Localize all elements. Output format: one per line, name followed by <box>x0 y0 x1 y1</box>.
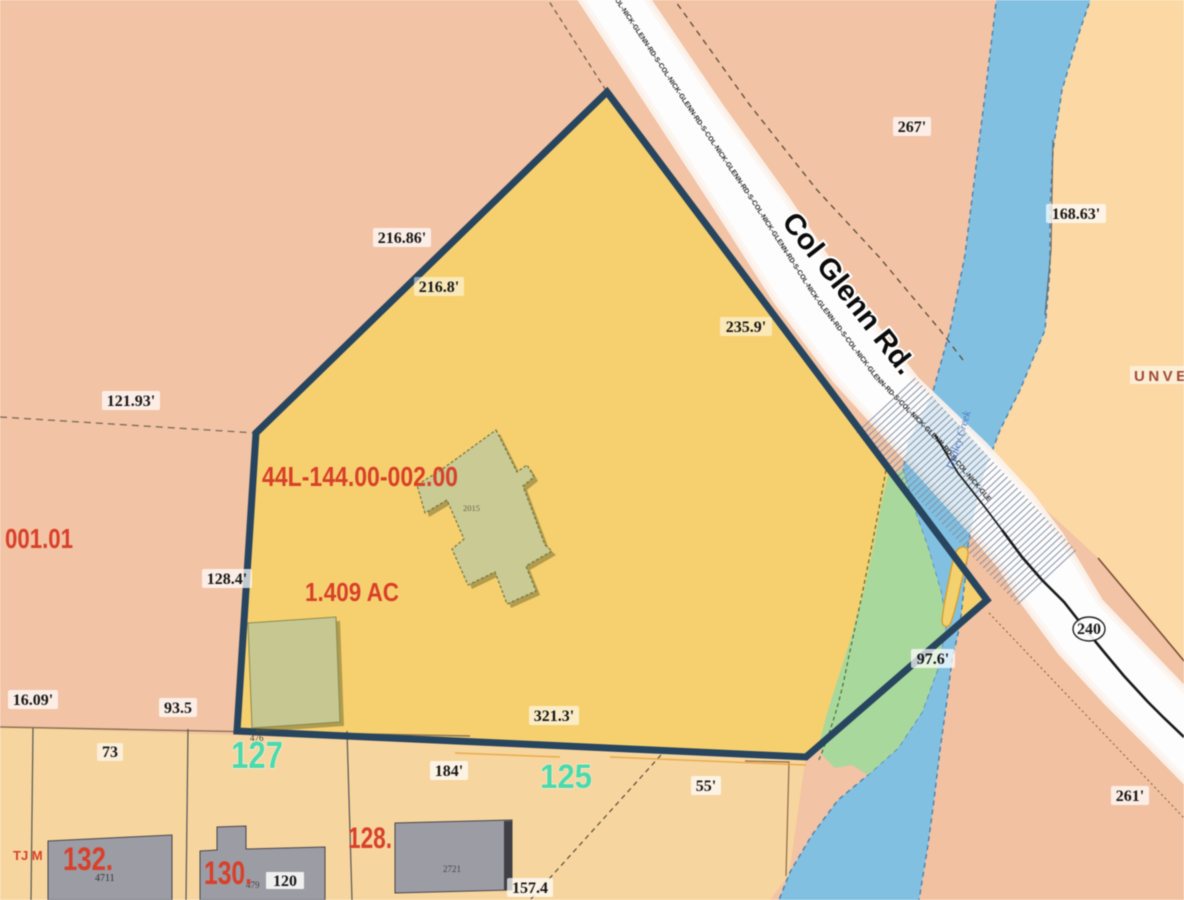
svg-text:184': 184' <box>435 763 463 780</box>
svg-text:44L-144.00-002.00: 44L-144.00-002.00 <box>262 461 458 492</box>
svg-text:168.63': 168.63' <box>1052 206 1100 223</box>
svg-text:73: 73 <box>102 744 118 761</box>
svg-text:16.09': 16.09' <box>13 692 53 709</box>
svg-text:127: 127 <box>231 735 283 777</box>
svg-text:267': 267' <box>898 119 926 136</box>
svg-text:001.01: 001.01 <box>5 523 73 554</box>
svg-text:321.3': 321.3' <box>534 708 574 725</box>
svg-text:132.: 132. <box>63 841 113 877</box>
svg-text:97.6': 97.6' <box>917 651 949 668</box>
svg-text:157.4: 157.4 <box>512 880 548 897</box>
svg-text:261': 261' <box>1116 788 1144 805</box>
svg-text:UNVE: UNVE <box>1134 368 1184 385</box>
svg-text:130.: 130. <box>204 855 252 891</box>
svg-text:1.409 AC: 1.409 AC <box>305 577 399 607</box>
svg-text:93.5: 93.5 <box>164 700 192 717</box>
svg-text:216.86': 216.86' <box>378 230 426 247</box>
svg-text:120: 120 <box>273 873 297 890</box>
svg-text:2721: 2721 <box>443 864 461 874</box>
svg-text:TJ M: TJ M <box>13 848 43 863</box>
svg-text:216.8': 216.8' <box>419 279 459 296</box>
svg-text:55': 55' <box>696 778 716 795</box>
svg-text:128.4': 128.4' <box>207 571 247 588</box>
svg-text:235.9': 235.9' <box>726 319 766 336</box>
svg-text:125: 125 <box>540 758 592 796</box>
svg-text:121.93': 121.93' <box>107 393 155 410</box>
svg-text:240: 240 <box>1077 621 1101 638</box>
svg-text:128.: 128. <box>348 822 392 855</box>
svg-text:2015: 2015 <box>463 503 480 513</box>
